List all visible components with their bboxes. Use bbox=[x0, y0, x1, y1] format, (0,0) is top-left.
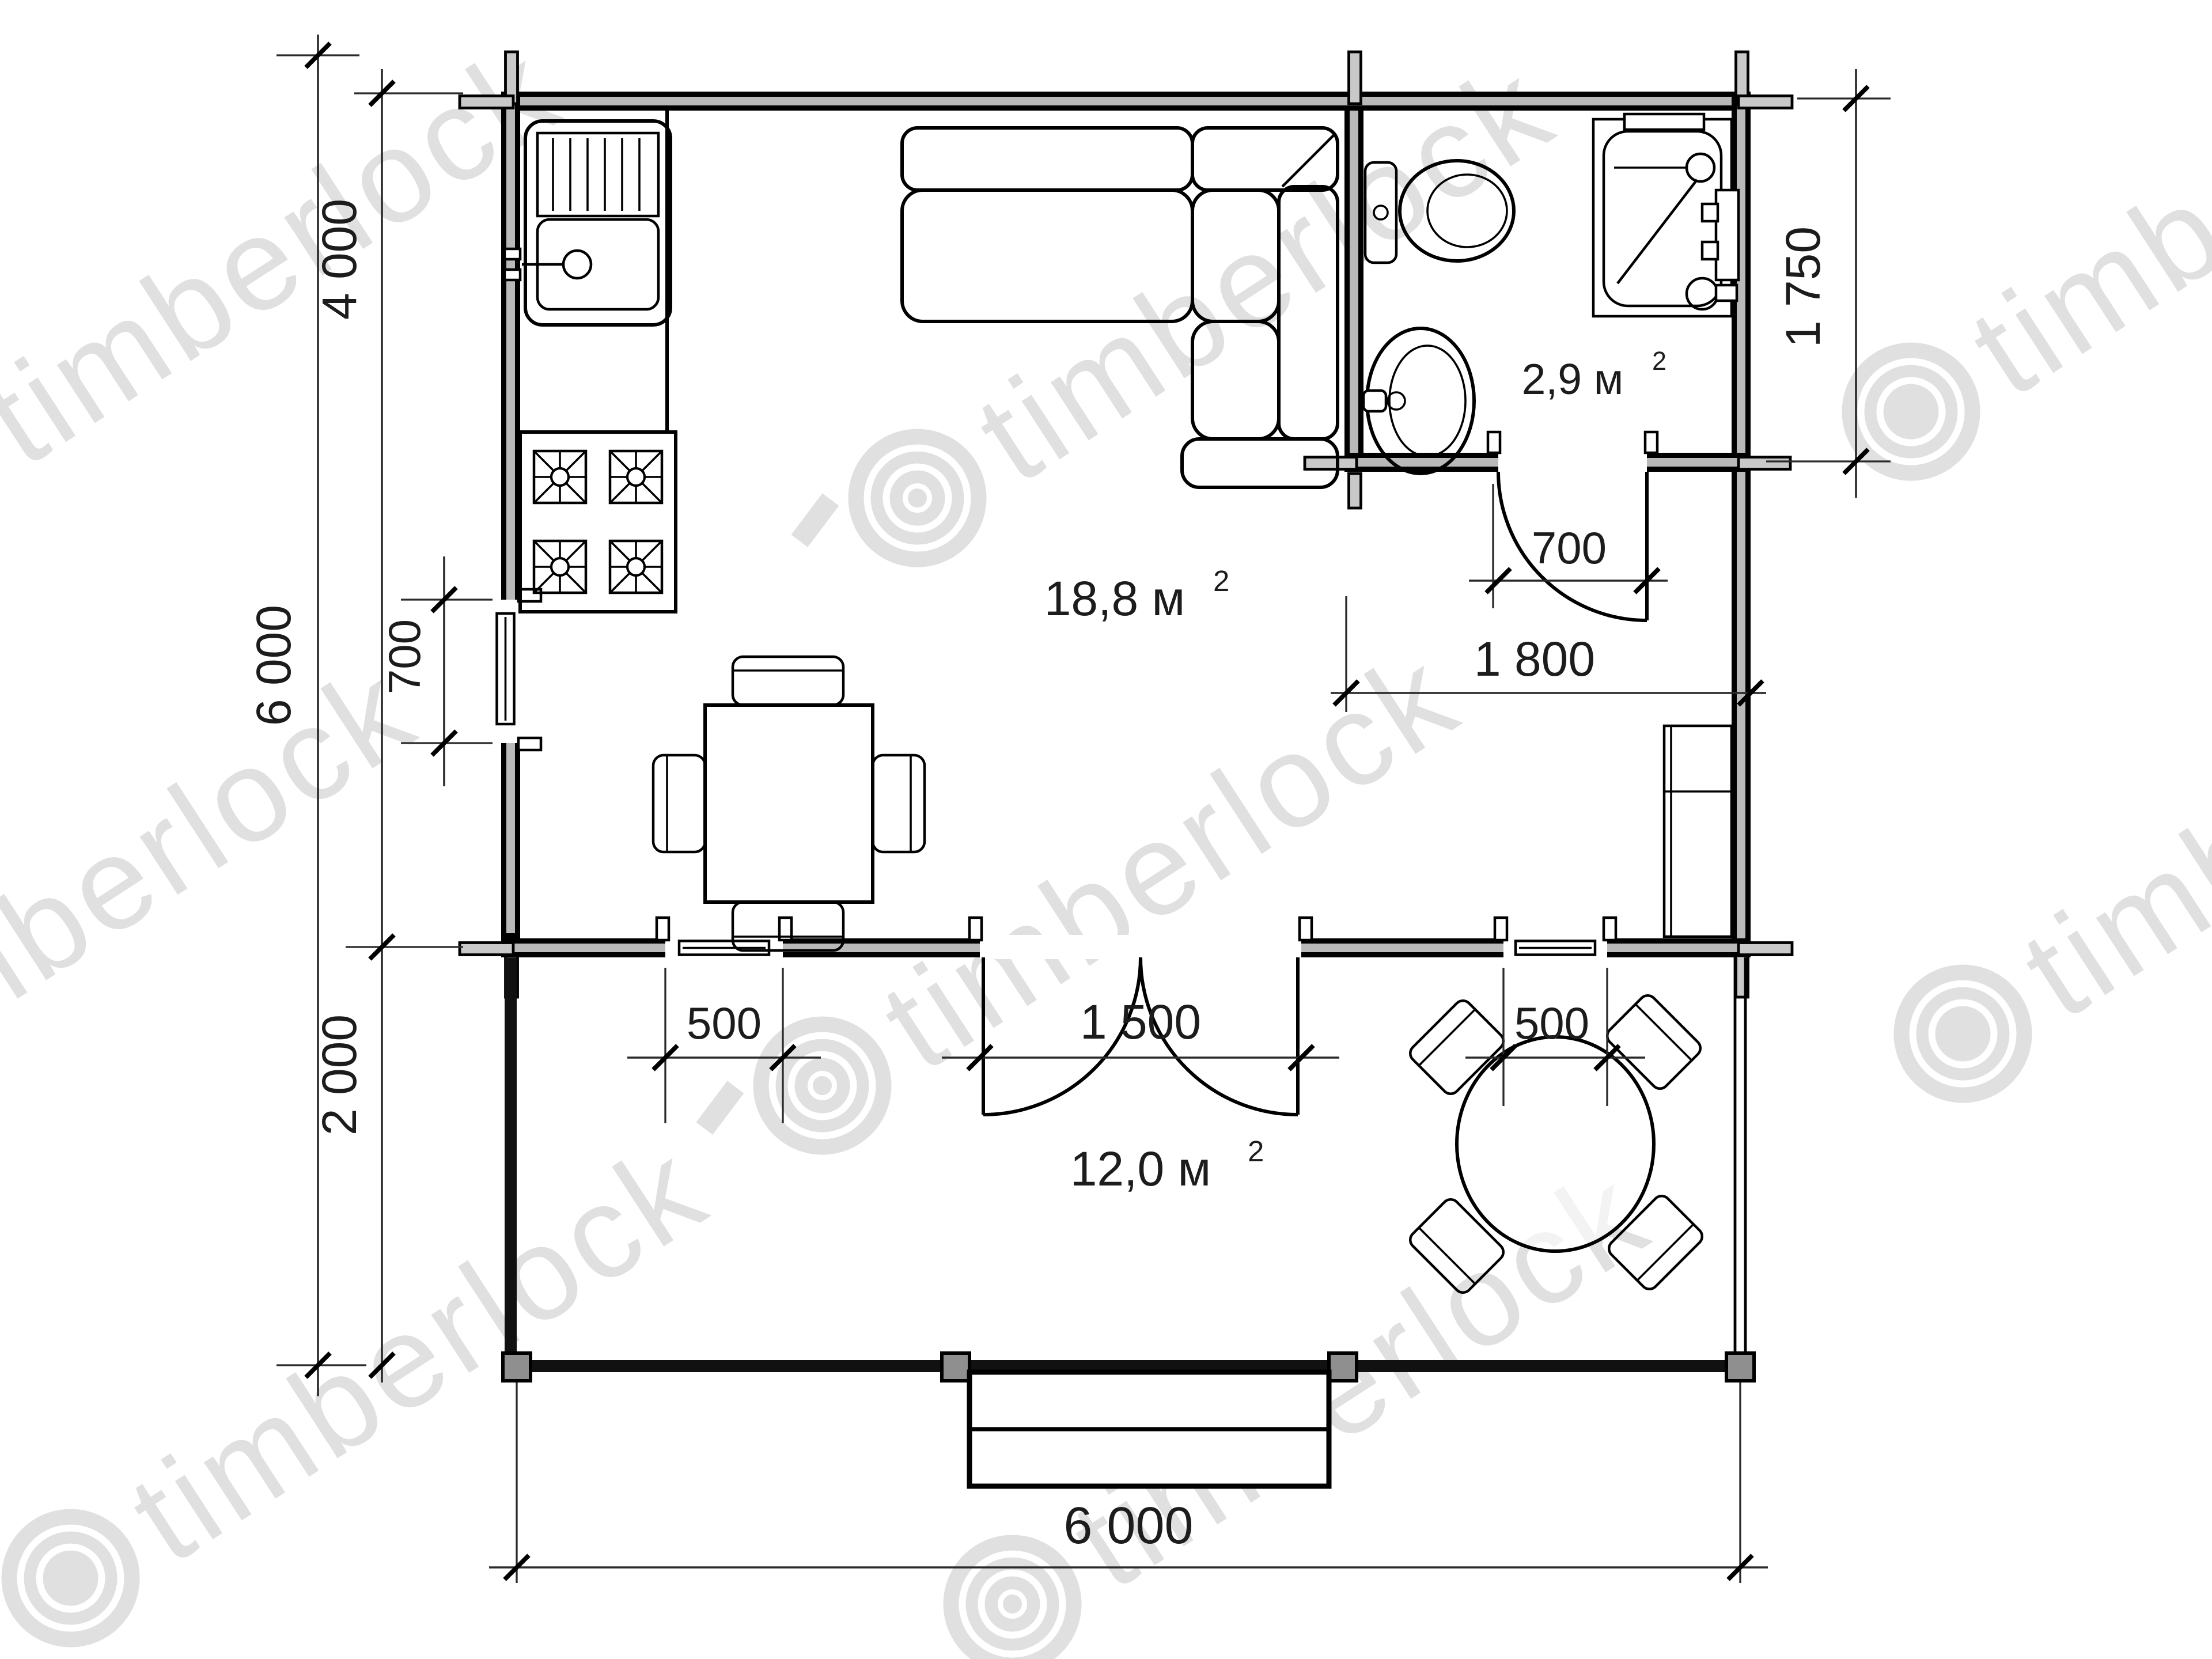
wardrobe bbox=[1664, 726, 1732, 937]
chair bbox=[653, 755, 705, 852]
shower bbox=[1593, 114, 1738, 316]
entrance-steps bbox=[969, 1372, 1329, 1486]
terrace-area-sup: 2 bbox=[1248, 1135, 1264, 1168]
terrace-post bbox=[1329, 1353, 1357, 1381]
bathroom-area-sup: 2 bbox=[1652, 346, 1666, 376]
burner bbox=[534, 451, 586, 503]
floor-plan: timberlock timberlock timberlock timberl… bbox=[0, 0, 2212, 1659]
watermark-unit: timberlock bbox=[772, 33, 1578, 628]
burner bbox=[610, 451, 662, 503]
stove bbox=[520, 432, 676, 612]
watermark-unit: timberlock bbox=[0, 635, 440, 1112]
dim-terrace-window-left-label: 500 bbox=[687, 998, 762, 1048]
dim-left-window-label: 700 bbox=[379, 619, 430, 694]
living-area-label: 18,8 м bbox=[1044, 571, 1185, 626]
dim-total-height-label: 6 000 bbox=[247, 605, 301, 726]
watermark-text: timberlock bbox=[0, 16, 584, 493]
dim-terrace-window-right-label: 500 bbox=[1514, 998, 1589, 1048]
dining-table bbox=[653, 657, 925, 950]
dim-terrace-door-label: 1 500 bbox=[1080, 995, 1201, 1049]
chair bbox=[873, 755, 925, 852]
dim-main-depth-label: 4 000 bbox=[312, 199, 366, 320]
watermark-unit: timberlock bbox=[677, 621, 1483, 1215]
burner bbox=[610, 541, 662, 593]
terrace-post bbox=[503, 1353, 531, 1381]
dim-bathroom-door-label: 700 bbox=[1532, 522, 1607, 573]
terrace-post bbox=[1726, 1353, 1754, 1381]
dim-terrace-depth-label: 2 000 bbox=[312, 1014, 366, 1135]
watermark-unit: timberlock bbox=[1813, 0, 2212, 510]
terrace-window-right bbox=[1495, 918, 1616, 959]
living-area-sup: 2 bbox=[1213, 565, 1229, 597]
watermark-text: timberlock bbox=[106, 1113, 731, 1590]
dim-bathroom-depth-label: 1 750 bbox=[1776, 226, 1830, 347]
dim-bathroom-width-label: 1 800 bbox=[1474, 632, 1595, 686]
watermark-unit: timberlock bbox=[1865, 569, 2212, 1132]
dim-total-width-label: 6 000 bbox=[1063, 1497, 1193, 1555]
watermark-text: timberlock bbox=[1946, 0, 2212, 424]
terrace-area-label: 12,0 м bbox=[1070, 1142, 1211, 1196]
terrace-post bbox=[942, 1353, 969, 1381]
burner bbox=[534, 541, 586, 593]
washbasin bbox=[1363, 328, 1474, 474]
watermark-text: timberlock bbox=[1998, 569, 2212, 1046]
chair bbox=[733, 657, 843, 705]
watermark-text: timberlock bbox=[0, 635, 440, 1112]
terrace-window-left bbox=[657, 918, 791, 959]
watermark-unit: timberlock bbox=[0, 1113, 731, 1659]
bathroom-area-label: 2,9 м bbox=[1522, 355, 1624, 403]
